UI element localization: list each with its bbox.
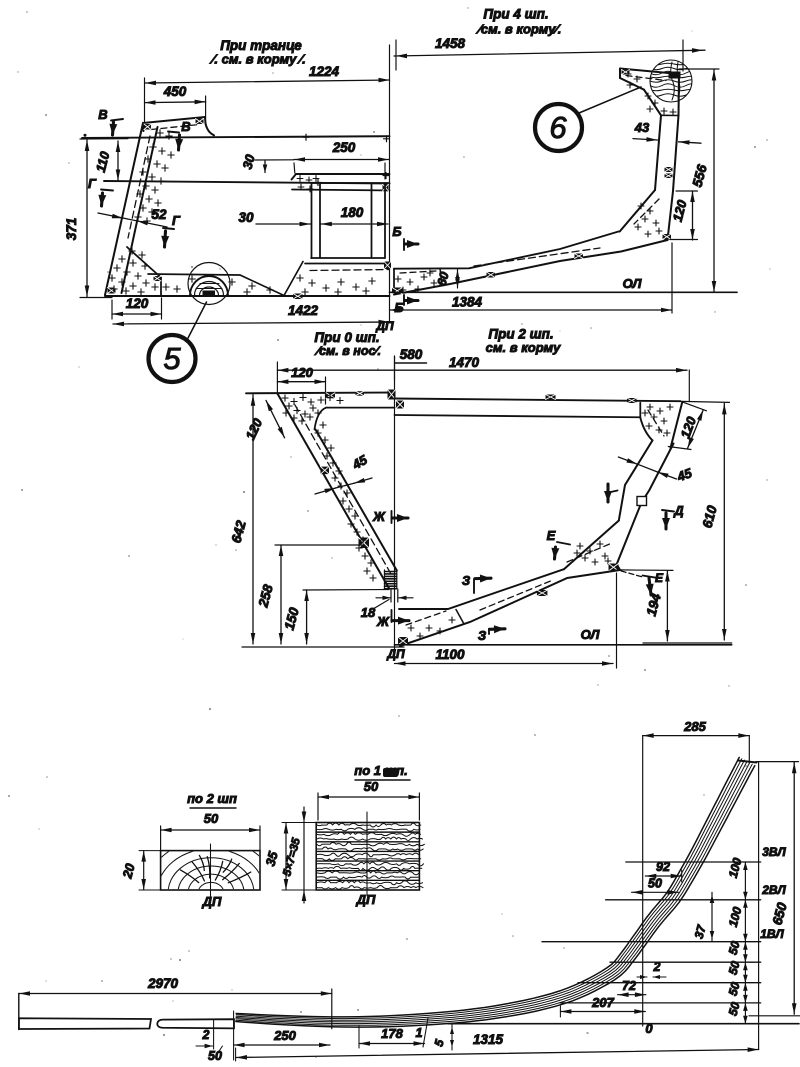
svg-text:Б: Б bbox=[392, 224, 401, 239]
svg-text:250: 250 bbox=[332, 140, 356, 155]
svg-text:ОЛ: ОЛ bbox=[581, 627, 601, 642]
svg-text:2ВЛ: 2ВЛ bbox=[761, 883, 786, 897]
svg-text:Б: Б bbox=[394, 300, 403, 315]
svg-text:18: 18 bbox=[361, 605, 376, 620]
svg-text:1384: 1384 bbox=[452, 295, 483, 310]
svg-text:1422: 1422 bbox=[288, 303, 319, 318]
svg-text:371: 371 bbox=[64, 218, 79, 241]
svg-text:43: 43 bbox=[634, 120, 650, 135]
svg-text:207: 207 bbox=[591, 995, 614, 1010]
svg-text:285: 285 bbox=[683, 719, 706, 734]
svg-text:92: 92 bbox=[656, 860, 670, 874]
svg-text:50: 50 bbox=[208, 1049, 222, 1063]
svg-text:∕см. в корму∕.: ∕см. в корму∕. bbox=[476, 22, 562, 37]
svg-text:50: 50 bbox=[648, 877, 662, 891]
svg-text:по 2 шп: по 2 шп bbox=[187, 791, 237, 806]
svg-text:2970: 2970 bbox=[147, 976, 179, 991]
svg-text:Г: Г bbox=[88, 176, 97, 191]
svg-text:180: 180 bbox=[341, 205, 364, 220]
svg-text:∕. см. в корму ∕.: ∕. см. в корму ∕. bbox=[209, 52, 306, 67]
svg-text:Д: Д bbox=[673, 503, 684, 518]
svg-text:2: 2 bbox=[653, 960, 661, 974]
svg-text:При 4 шп.: При 4 шп. bbox=[483, 7, 548, 22]
svg-text:0: 0 bbox=[645, 1021, 653, 1036]
svg-text:1ВЛ: 1ВЛ bbox=[760, 927, 784, 941]
svg-text:ДП: ДП bbox=[386, 647, 405, 661]
svg-text:5: 5 bbox=[163, 341, 181, 376]
svg-text:72: 72 bbox=[622, 979, 636, 993]
svg-text:1224: 1224 bbox=[309, 64, 340, 79]
svg-text:2: 2 bbox=[202, 1028, 210, 1042]
svg-text:1458: 1458 bbox=[435, 36, 466, 51]
svg-text:Ж: Ж bbox=[372, 509, 386, 524]
svg-text:по 1 шп.: по 1 шп. bbox=[354, 763, 407, 778]
svg-text:З: З bbox=[462, 573, 471, 588]
svg-text:Г: Г bbox=[172, 213, 181, 228]
svg-text:∕см. в нос∕.: ∕см. в нос∕. bbox=[314, 344, 381, 358]
svg-text:580: 580 bbox=[400, 347, 423, 362]
svg-text:120: 120 bbox=[291, 365, 313, 380]
svg-text:ОЛ: ОЛ bbox=[623, 276, 643, 291]
svg-text:450: 450 bbox=[163, 84, 187, 99]
svg-text:1: 1 bbox=[416, 1026, 423, 1040]
svg-text:6: 6 bbox=[549, 110, 567, 145]
svg-text:З: З bbox=[478, 628, 487, 643]
svg-text:ДП: ДП bbox=[356, 892, 376, 907]
svg-text:120: 120 bbox=[126, 296, 149, 311]
svg-text:178: 178 bbox=[381, 1026, 403, 1041]
svg-text:Е: Е bbox=[547, 528, 556, 543]
svg-text:1100: 1100 bbox=[435, 647, 465, 662]
svg-text:52: 52 bbox=[151, 207, 167, 222]
svg-text:50: 50 bbox=[204, 811, 219, 826]
svg-text:В: В bbox=[98, 107, 107, 122]
svg-text:В: В bbox=[181, 119, 190, 134]
svg-text:1470: 1470 bbox=[449, 355, 480, 370]
svg-text:ДП: ДП bbox=[202, 894, 222, 909]
svg-text:Ж: Ж bbox=[376, 614, 390, 629]
svg-text:см. в корму: см. в корму bbox=[486, 340, 561, 355]
svg-text:3ВЛ: 3ВЛ bbox=[762, 845, 786, 859]
svg-text:250: 250 bbox=[273, 1028, 296, 1043]
svg-text:30: 30 bbox=[238, 210, 254, 225]
svg-text:При 0 шп.: При 0 шп. bbox=[314, 330, 379, 345]
svg-text:50: 50 bbox=[364, 779, 379, 794]
svg-text:1315: 1315 bbox=[473, 1032, 504, 1047]
